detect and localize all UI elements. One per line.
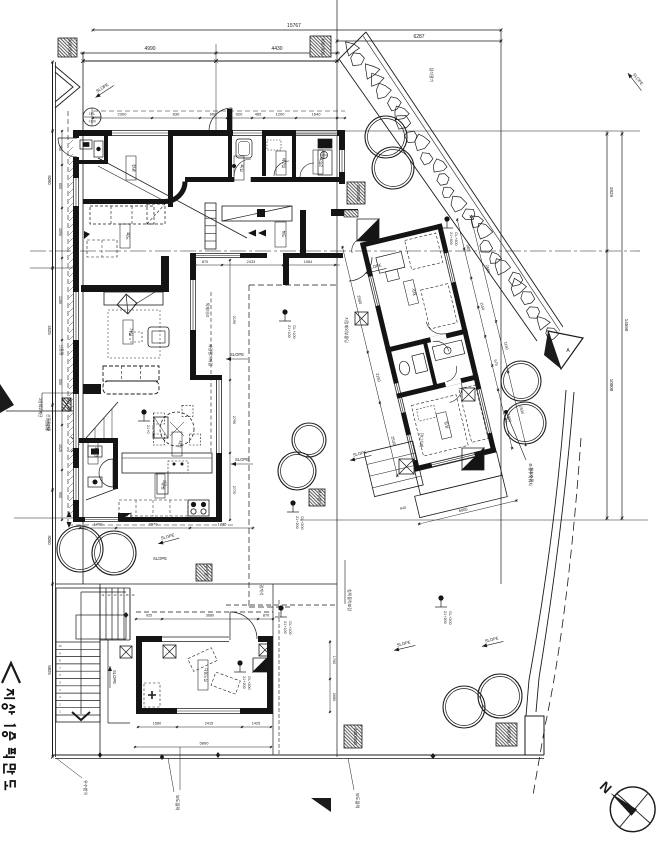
svg-text:21+400: 21+400 <box>449 232 453 245</box>
svg-text:925: 925 <box>146 614 152 618</box>
svg-text:잔디식재: 잔디식재 <box>419 433 425 448</box>
svg-text:6090: 6090 <box>47 175 52 185</box>
svg-text:외부수전: 외부수전 <box>529 468 535 483</box>
svg-text:주방: 주방 <box>160 482 167 490</box>
svg-text:21+0: 21+0 <box>146 425 150 434</box>
svg-text:다용도실: 다용도실 <box>204 668 209 682</box>
svg-text:2190: 2190 <box>232 316 236 324</box>
svg-text:21+200: 21+200 <box>242 676 246 689</box>
svg-text:GL+200: GL+200 <box>300 516 304 530</box>
svg-text:잡석깔기: 잡석깔기 <box>429 68 435 83</box>
svg-text:21+100: 21+100 <box>283 621 287 634</box>
svg-text:830: 830 <box>173 112 180 117</box>
svg-text:1090: 1090 <box>58 228 62 236</box>
svg-text:GL+100: GL+100 <box>292 325 296 339</box>
svg-text:1760: 1760 <box>332 656 336 664</box>
svg-text:4430: 4430 <box>271 46 282 52</box>
svg-text:욕실3: 욕실3 <box>93 447 100 458</box>
svg-text:2770: 2770 <box>232 486 236 494</box>
svg-text:1280: 1280 <box>58 296 62 304</box>
svg-text:우수받이: 우수받이 <box>203 565 210 581</box>
svg-text:5800: 5800 <box>200 741 210 746</box>
svg-text:400X500: 400X500 <box>321 38 326 55</box>
svg-text:6287: 6287 <box>413 34 424 40</box>
svg-text:1025: 1025 <box>58 444 62 452</box>
svg-text:선홈통: 선홈통 <box>45 419 51 430</box>
svg-text:보도블럭: 보도블럭 <box>354 793 361 809</box>
svg-text:21+200: 21+200 <box>295 516 299 529</box>
svg-text:900: 900 <box>58 492 62 498</box>
svg-text:침목블럭포장: 침목블럭포장 <box>347 589 353 611</box>
svg-text:SLOPE: SLOPE <box>235 457 249 462</box>
svg-text:2970: 2970 <box>149 522 159 527</box>
svg-text:지정재외부몰딩: 지정재외부몰딩 <box>344 317 350 343</box>
svg-text:21+200: 21+200 <box>443 611 447 624</box>
svg-text:2415: 2415 <box>205 722 213 726</box>
svg-text:욕실2: 욕실2 <box>318 157 325 168</box>
svg-text:1425: 1425 <box>252 722 260 726</box>
svg-text:4525: 4525 <box>47 325 52 335</box>
svg-text:750: 750 <box>58 145 62 151</box>
svg-text:900: 900 <box>210 112 217 117</box>
svg-text:자갈깔기마감: 자갈깔기마감 <box>208 344 214 366</box>
svg-text:4990: 4990 <box>144 46 155 52</box>
svg-text:복도: 복도 <box>281 230 287 238</box>
svg-text:400X500: 400X500 <box>507 726 512 743</box>
svg-text:600: 600 <box>58 183 62 189</box>
svg-text:2680: 2680 <box>332 693 336 701</box>
svg-text:870: 870 <box>263 614 269 618</box>
svg-text:1490: 1490 <box>94 522 104 527</box>
svg-text:1964: 1964 <box>304 260 312 264</box>
svg-text:현관: 현관 <box>132 164 138 172</box>
svg-text:10000: 10000 <box>609 379 614 392</box>
svg-text:920: 920 <box>236 112 243 117</box>
svg-text:우수받이: 우수받이 <box>82 780 89 796</box>
svg-text:14590: 14590 <box>624 319 629 332</box>
svg-text:400X500: 400X500 <box>68 39 73 56</box>
svg-text:보도블럭: 보도블럭 <box>174 795 181 811</box>
svg-text:21+100: 21+100 <box>287 325 291 338</box>
svg-text:GL+200: GL+200 <box>151 425 155 439</box>
svg-text:3680: 3680 <box>206 614 214 618</box>
svg-text:1580: 1580 <box>153 722 161 726</box>
svg-text:GL+100: GL+100 <box>288 621 292 635</box>
svg-text:우수받이: 우수받이 <box>316 490 323 506</box>
svg-text:욕실: 욕실 <box>239 164 246 172</box>
svg-text:550: 550 <box>58 379 62 385</box>
svg-text:GL+200: GL+200 <box>247 676 251 690</box>
svg-text:2790: 2790 <box>232 416 236 424</box>
svg-text:1640: 1640 <box>312 112 322 117</box>
svg-text:GL+200: GL+200 <box>448 611 452 625</box>
svg-text:400X500: 400X500 <box>353 728 358 745</box>
svg-text:SLOPE: SLOPE <box>153 556 167 561</box>
svg-text:1200: 1200 <box>276 112 286 117</box>
svg-text:거실: 거실 <box>128 328 135 336</box>
svg-text:15767: 15767 <box>287 23 301 29</box>
svg-text:+100: +100 <box>88 120 95 124</box>
svg-text:2433: 2433 <box>247 260 255 264</box>
svg-text:SLOPE: SLOPE <box>230 352 244 357</box>
svg-text:SLOPE: SLOPE <box>112 670 117 684</box>
svg-text:3929: 3929 <box>609 187 614 198</box>
svg-text:870: 870 <box>202 260 208 264</box>
svg-text:경계석: 경계석 <box>259 584 265 595</box>
svg-text:식당: 식당 <box>177 440 184 448</box>
svg-text:400X500: 400X500 <box>356 185 361 202</box>
svg-text:2층외부계단: 2층외부계단 <box>38 398 43 418</box>
svg-text:465: 465 <box>255 112 262 117</box>
svg-text:GL+400: GL+400 <box>454 232 458 246</box>
svg-text:1FL: 1FL <box>89 112 95 116</box>
svg-text:1735: 1735 <box>218 522 228 527</box>
svg-text:세면실: 세면실 <box>282 158 287 169</box>
svg-text:5825: 5825 <box>47 665 52 675</box>
svg-text:목재데크: 목재데크 <box>205 303 211 318</box>
svg-text:3050: 3050 <box>47 535 52 545</box>
svg-text:2300: 2300 <box>118 112 128 117</box>
